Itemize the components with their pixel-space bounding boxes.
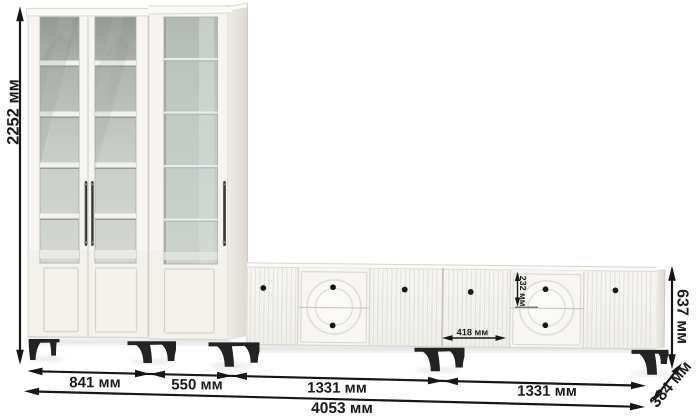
svg-text:232 мм: 232 мм bbox=[518, 276, 528, 307]
svg-text:4053 мм: 4053 мм bbox=[311, 400, 373, 417]
svg-text:637 мм: 637 мм bbox=[674, 289, 691, 344]
svg-text:1331 мм: 1331 мм bbox=[307, 380, 367, 397]
svg-text:418 мм: 418 мм bbox=[457, 327, 489, 337]
svg-text:841 мм: 841 мм bbox=[69, 374, 120, 391]
svg-text:550 мм: 550 мм bbox=[171, 376, 222, 393]
svg-text:2252 мм: 2252 мм bbox=[5, 79, 23, 145]
svg-text:1331 мм: 1331 мм bbox=[517, 383, 577, 400]
